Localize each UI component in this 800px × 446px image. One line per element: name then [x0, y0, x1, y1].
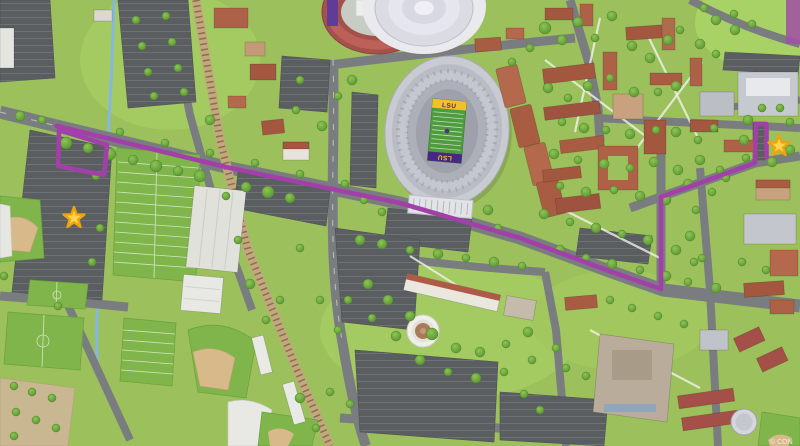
- campus-map-canvas[interactable]: LSU LSU: [0, 0, 800, 446]
- campus-map[interactable]: LSU LSU: [0, 0, 800, 446]
- softball-field: [188, 325, 256, 398]
- football-field: LSU LSU: [427, 99, 466, 164]
- practice-field-south: [120, 318, 176, 386]
- engineering-complex[interactable]: [593, 334, 674, 422]
- watermark: © CON: [770, 438, 793, 446]
- endzone-text-north: LSU: [442, 102, 457, 110]
- endzone-text-south: LSU: [437, 153, 452, 161]
- highlighted-building: [786, 0, 800, 44]
- baseball-field-west: [0, 196, 44, 262]
- field-house: [186, 186, 246, 273]
- indoor-practice-facility: [181, 274, 224, 313]
